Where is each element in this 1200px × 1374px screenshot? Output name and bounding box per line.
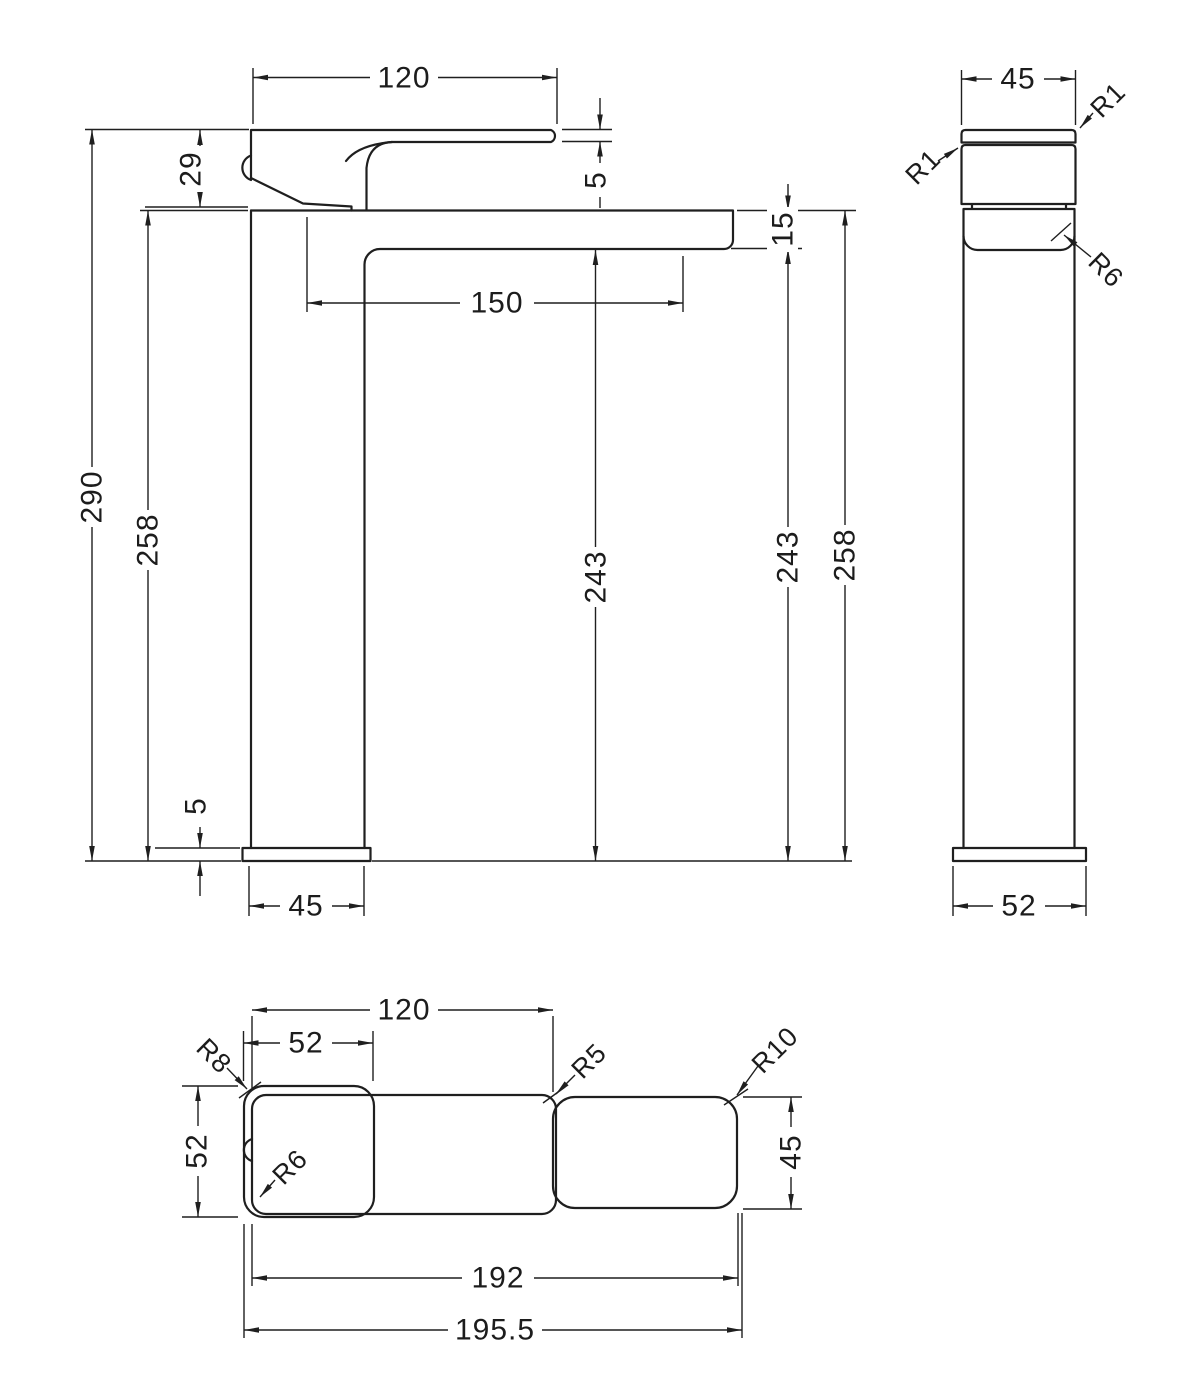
radius-label-handle-left: R1	[899, 143, 946, 190]
dim-handle-length: 120	[377, 62, 430, 95]
leader-radius-left	[938, 148, 958, 161]
dim-handle-length-plan: 120	[377, 994, 430, 1027]
radius-label-handle-right: R1	[1084, 76, 1131, 123]
lever-cap-side	[962, 130, 1076, 143]
dim-base-width-plan: 52	[181, 1133, 214, 1168]
dim-clearance-mid: 243	[580, 550, 613, 603]
radius-label-spout-bottom: R6	[1082, 246, 1129, 293]
spout-bottom-radius-side	[964, 236, 1075, 250]
dim-height-left: 258	[132, 513, 165, 566]
drawing-sheet: 120 29 5 150 15 243 258 243 258 290 5 45…	[0, 0, 1200, 1369]
dim-length-192: 192	[471, 1262, 524, 1295]
dim-handle-width-side: 45	[1000, 63, 1035, 96]
tap-technical-drawing: 120 29 5 150 15 243 258 243 258 290 5 45…	[0, 0, 1200, 1369]
dim-spout-width-plan: 45	[775, 1134, 808, 1169]
handle-outline-front	[251, 130, 555, 210]
base-plate-front	[243, 848, 371, 861]
dim-base-plate-height: 5	[180, 797, 213, 815]
side-view-elevation: 45 52 R1 R1 R6	[899, 63, 1131, 923]
dim-body-width: 45	[288, 890, 323, 923]
base-footprint-plan	[244, 1086, 374, 1217]
column-side	[964, 205, 1075, 849]
spout-footprint-plan	[553, 1097, 737, 1208]
dim-height-right: 258	[829, 528, 862, 581]
plan-view: 120 52 52 45 192 195.5 R8 R6 R5 R10	[181, 994, 808, 1347]
dim-base-length-plan: 52	[288, 1027, 323, 1060]
dim-handle-height: 29	[175, 151, 208, 186]
side-extension-lines	[953, 70, 1086, 916]
handle-block-side	[962, 145, 1076, 204]
base-plate-side	[953, 848, 1086, 861]
dim-spout-tip-height: 15	[767, 211, 800, 246]
handle-base-front	[251, 178, 352, 211]
leader-radius-handle-corner	[260, 1180, 275, 1197]
leader-radius-spout-end	[737, 1066, 758, 1095]
dim-spout-reach: 150	[470, 287, 523, 320]
dim-overall-height: 290	[76, 470, 109, 523]
handle-pivot-arc	[242, 156, 251, 181]
dim-overall-length: 195.5	[455, 1314, 535, 1347]
leader-radius-bottom	[1064, 235, 1091, 257]
dim-lever-thickness: 5	[580, 171, 613, 189]
dim-base-width-side: 52	[1001, 890, 1036, 923]
radius-label-handle-corner: R6	[266, 1143, 313, 1190]
leader-radius-right	[1080, 113, 1093, 128]
dim-clearance-right: 243	[772, 530, 805, 583]
front-view-elevation: 120 29 5 150 15 243 258 243 258 290 5 45	[75, 62, 862, 923]
